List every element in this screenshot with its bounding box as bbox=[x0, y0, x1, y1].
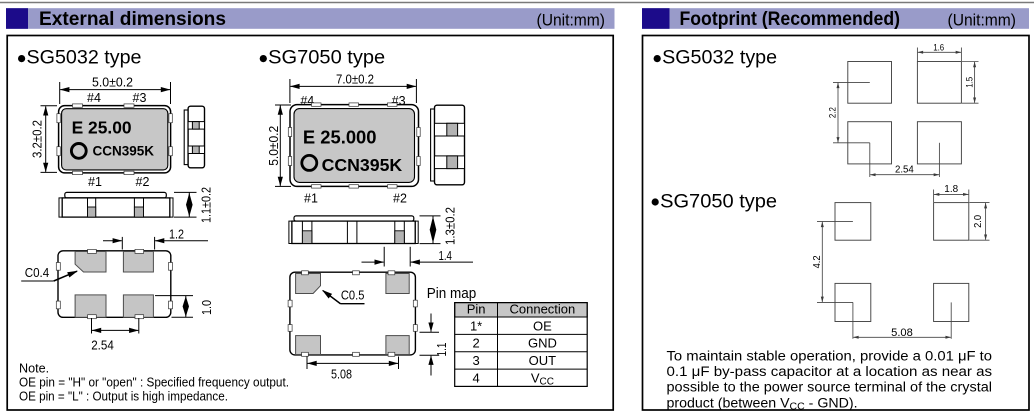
svg-text:product (between VCC - GND).: product (between VCC - GND). bbox=[667, 395, 858, 412]
svg-text:#3: #3 bbox=[133, 91, 147, 105]
svg-text:Pin map: Pin map bbox=[427, 286, 477, 302]
svg-text:OE pin = "L" : Output is high: OE pin = "L" : Output is high impedance. bbox=[19, 389, 228, 403]
svg-text:Note.: Note. bbox=[19, 362, 49, 376]
svg-text:1.6: 1.6 bbox=[933, 43, 944, 53]
svg-text:E 25.000: E 25.000 bbox=[303, 126, 377, 147]
svg-text:1.4: 1.4 bbox=[438, 249, 452, 263]
svg-text:SG5032 type: SG5032 type bbox=[27, 47, 142, 69]
svg-text:#2: #2 bbox=[136, 175, 150, 189]
svg-text:4.2: 4.2 bbox=[811, 255, 823, 268]
svg-text:#1: #1 bbox=[88, 175, 102, 189]
svg-text:2.0: 2.0 bbox=[972, 215, 984, 228]
svg-text:SG7050 type: SG7050 type bbox=[660, 190, 777, 212]
svg-text:1.2: 1.2 bbox=[169, 228, 184, 242]
svg-text:1.1±0.2: 1.1±0.2 bbox=[199, 187, 213, 223]
svg-text:1.1: 1.1 bbox=[435, 342, 449, 356]
svg-text:5.08: 5.08 bbox=[331, 367, 352, 381]
svg-text:3: 3 bbox=[472, 353, 479, 368]
svg-text:(Unit:mm): (Unit:mm) bbox=[537, 11, 606, 30]
svg-text:Connection: Connection bbox=[510, 302, 576, 317]
svg-text:7.0±0.2: 7.0±0.2 bbox=[336, 72, 374, 86]
svg-text:3.2±0.2: 3.2±0.2 bbox=[31, 120, 45, 158]
svg-text:2.54: 2.54 bbox=[895, 164, 914, 175]
svg-text:2.2: 2.2 bbox=[828, 107, 838, 118]
svg-text:VCC: VCC bbox=[531, 370, 554, 387]
svg-text:0.1 μF by-pass capacitor at a: 0.1 μF by-pass capacitor at a location a… bbox=[667, 364, 993, 380]
svg-text:4: 4 bbox=[472, 370, 479, 385]
svg-text:#1: #1 bbox=[304, 192, 318, 206]
svg-text:1.3±0.2: 1.3±0.2 bbox=[444, 207, 458, 245]
svg-text:OE pin = "H" or "open" : Speci: OE pin = "H" or "open" : Specified frequ… bbox=[19, 376, 289, 390]
svg-text:5.0±0.2: 5.0±0.2 bbox=[267, 126, 281, 166]
svg-text:SG7050 type: SG7050 type bbox=[268, 47, 385, 69]
svg-text:E 25.00: E 25.00 bbox=[72, 117, 132, 137]
svg-text:C0.4: C0.4 bbox=[25, 266, 50, 280]
svg-text:External dimensions: External dimensions bbox=[39, 9, 226, 30]
svg-text:To maintain stable operation,: To maintain stable operation, provide a … bbox=[667, 348, 993, 364]
svg-text:possible to the power source t: possible to the power source terminal of… bbox=[667, 380, 993, 396]
svg-text:5.08: 5.08 bbox=[891, 327, 913, 339]
svg-text:C0.5: C0.5 bbox=[341, 289, 365, 303]
svg-text:2: 2 bbox=[472, 336, 479, 351]
svg-text:GND: GND bbox=[528, 336, 557, 351]
svg-text:#4: #4 bbox=[87, 91, 101, 105]
svg-text:OUT: OUT bbox=[529, 353, 557, 368]
svg-text:(Unit:mm): (Unit:mm) bbox=[948, 11, 1017, 30]
svg-text:SG5032 type: SG5032 type bbox=[662, 47, 777, 69]
svg-text:1.8: 1.8 bbox=[944, 183, 958, 195]
svg-text:5.0±0.2: 5.0±0.2 bbox=[92, 76, 133, 90]
svg-text:CCN395K: CCN395K bbox=[322, 155, 403, 175]
svg-text:1.0: 1.0 bbox=[200, 300, 214, 315]
svg-text:Footprint (Recommended): Footprint (Recommended) bbox=[680, 9, 901, 30]
svg-text:1*: 1* bbox=[470, 318, 482, 333]
svg-text:1.5: 1.5 bbox=[964, 77, 974, 88]
svg-text:2.54: 2.54 bbox=[91, 339, 114, 353]
svg-text:Pin: Pin bbox=[467, 302, 486, 317]
svg-text:OE: OE bbox=[533, 318, 552, 333]
svg-text:CCN395K: CCN395K bbox=[93, 144, 155, 159]
svg-text:#2: #2 bbox=[393, 192, 407, 206]
